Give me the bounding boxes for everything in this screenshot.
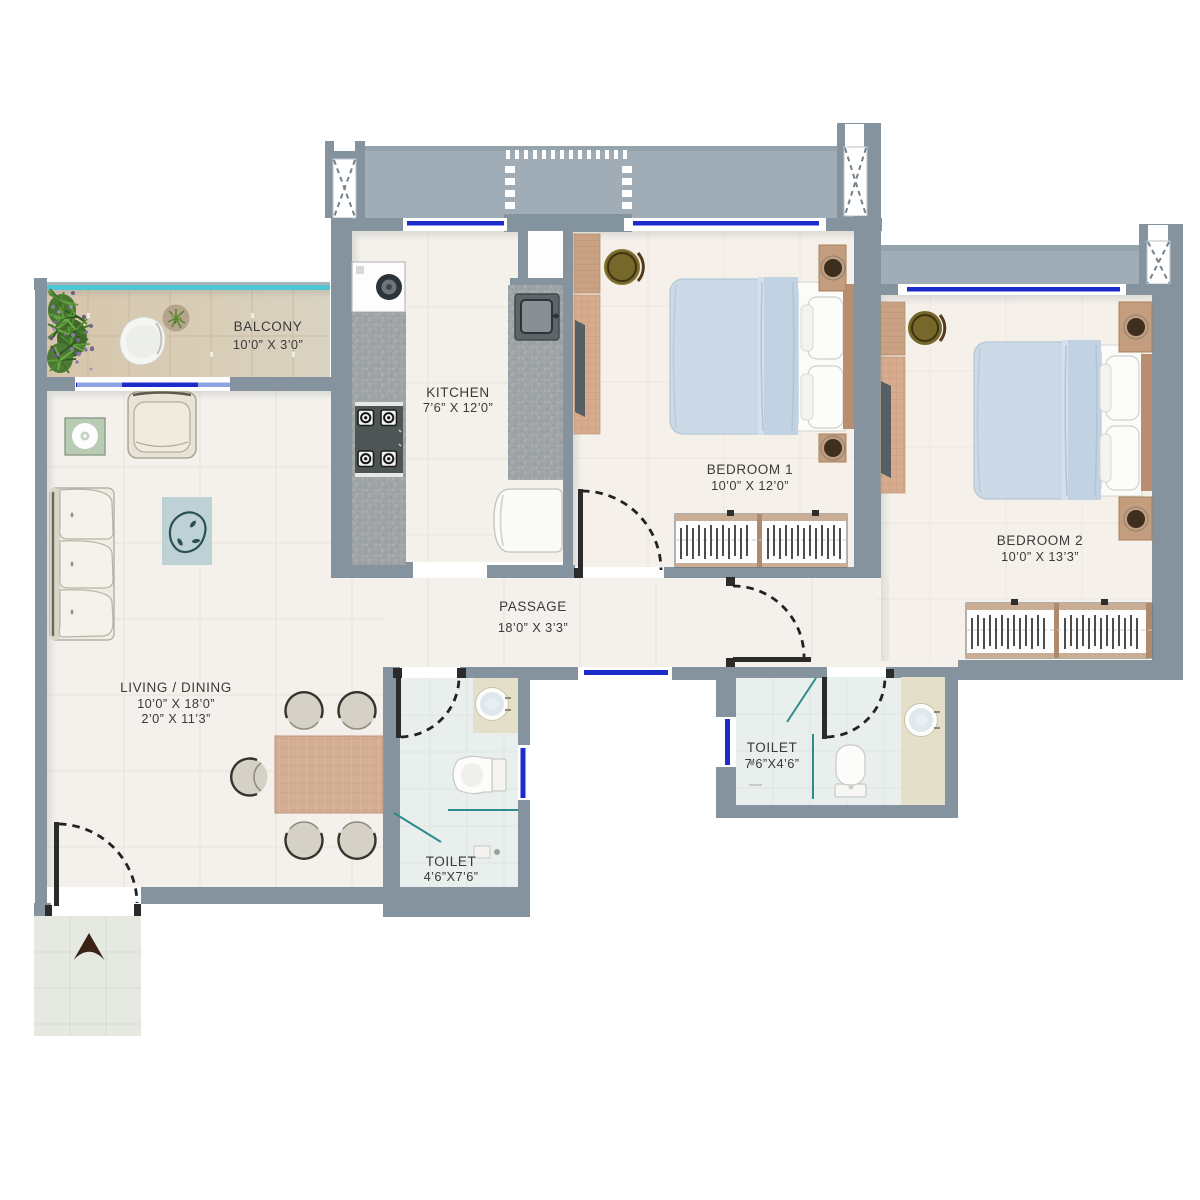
svg-text:10’0” X 12’0”: 10’0” X 12’0” [711, 478, 789, 493]
svg-text:10’0” X 13’3”: 10’0” X 13’3” [1001, 549, 1079, 564]
svg-text:4’6”X7’6”: 4’6”X7’6” [424, 869, 479, 884]
svg-text:7’6” X 12’0”: 7’6” X 12’0” [423, 400, 493, 415]
svg-text:7’6”X4’6”: 7’6”X4’6” [745, 756, 800, 771]
svg-text:BALCONY: BALCONY [234, 319, 303, 334]
svg-text:PASSAGE: PASSAGE [499, 599, 567, 614]
svg-text:10’0” X 18’0”: 10’0” X 18’0” [137, 696, 215, 711]
svg-text:2’0” X 11’3”: 2’0” X 11’3” [141, 711, 210, 726]
svg-text:KITCHEN: KITCHEN [426, 385, 489, 400]
svg-text:18’0” X 3’3”: 18’0” X 3’3” [498, 620, 568, 635]
svg-text:10’0” X 3’0”: 10’0” X 3’0” [233, 337, 303, 352]
svg-text:LIVING / DINING: LIVING / DINING [120, 680, 232, 695]
svg-text:TOILET: TOILET [747, 740, 798, 755]
svg-text:BEDROOM 1: BEDROOM 1 [707, 462, 793, 477]
svg-text:TOILET: TOILET [426, 854, 477, 869]
svg-text:BEDROOM 2: BEDROOM 2 [997, 533, 1083, 548]
